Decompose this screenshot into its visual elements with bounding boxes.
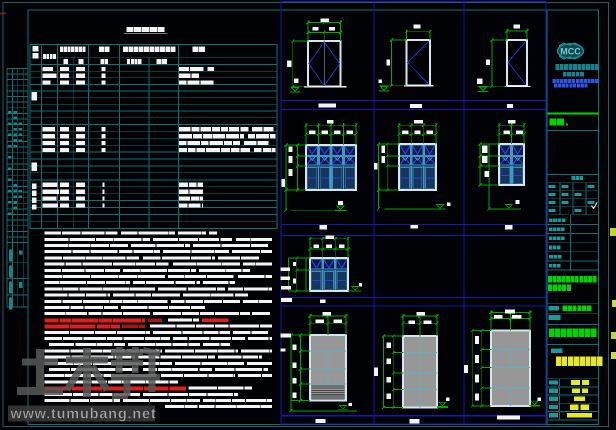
svg-text:www.tumubang.net: www.tumubang.net [10,407,157,423]
svg-text:MCC: MCC [560,47,581,57]
